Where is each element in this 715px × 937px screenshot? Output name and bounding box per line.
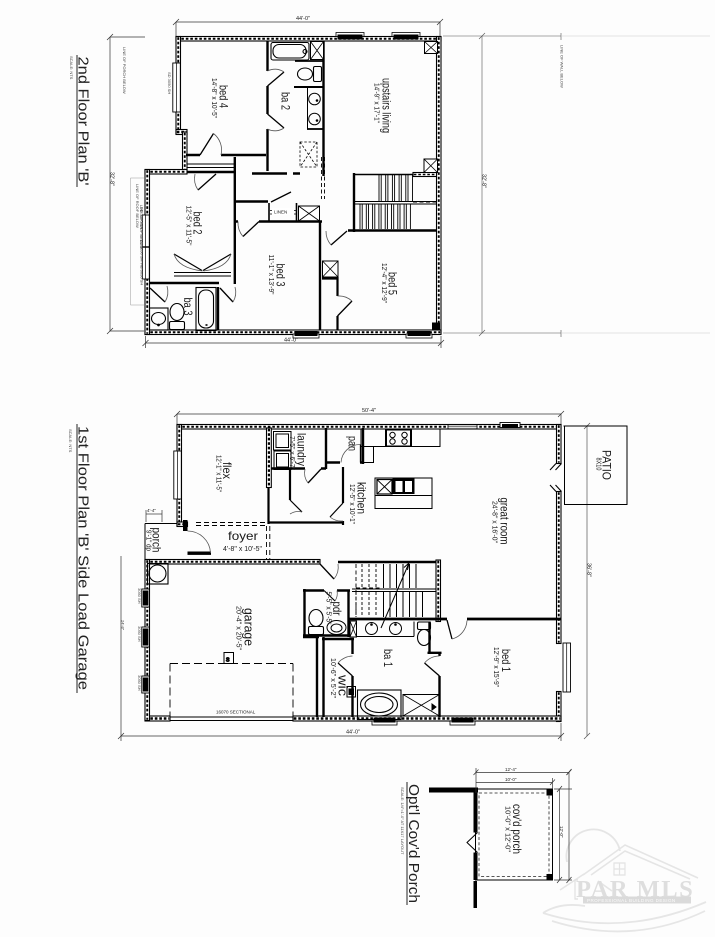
svg-text:44'-0": 44'-0" bbox=[296, 16, 310, 22]
svg-text:50'-4": 50'-4" bbox=[362, 408, 376, 414]
svg-text:LINE OF PORCH BELOW: LINE OF PORCH BELOW bbox=[122, 47, 127, 94]
svg-text:3050 SH: 3050 SH bbox=[137, 675, 142, 691]
svg-text:5'-5" x 5'-5": 5'-5" x 5'-5" bbox=[325, 592, 332, 625]
svg-text:bed 1: bed 1 bbox=[499, 649, 513, 672]
svg-text:ba 3: ba 3 bbox=[181, 298, 195, 316]
svg-text:3050 SH: 3050 SH bbox=[137, 588, 142, 604]
svg-text:10'-6" x 5'-2": 10'-6" x 5'-2" bbox=[329, 658, 336, 699]
svg-text:4'-4": 4'-4" bbox=[147, 508, 156, 513]
svg-text:upstairs living: upstairs living bbox=[380, 78, 394, 133]
svg-text:pan: pan bbox=[346, 436, 360, 451]
svg-text:ba 2: ba 2 bbox=[279, 92, 293, 110]
svg-text:12'-4" x 12'-9": 12'-4" x 12'-9" bbox=[380, 263, 387, 303]
svg-text:24'-8": 24'-8" bbox=[121, 620, 126, 631]
svg-text:8X10: 8X10 bbox=[595, 458, 602, 471]
svg-text:SCALE: NTS: SCALE: NTS bbox=[68, 429, 73, 453]
svg-text:14'-9" x 17'-1": 14'-9" x 17'-1" bbox=[373, 83, 380, 123]
svg-text:7'-5" x 6'-7": 7'-5" x 6'-7" bbox=[288, 436, 295, 470]
svg-text:4'-8" x 10'-5": 4'-8" x 10'-5" bbox=[223, 546, 263, 553]
svg-text:great room: great room bbox=[498, 498, 512, 545]
svg-text:bed 2: bed 2 bbox=[191, 212, 205, 235]
svg-text:32'-8": 32'-8" bbox=[109, 172, 115, 186]
svg-text:20'-4" x 20'-5": 20'-4" x 20'-5" bbox=[235, 606, 242, 651]
svg-text:BL 3050 SH: BL 3050 SH bbox=[140, 240, 145, 262]
svg-text:wic: wic bbox=[336, 674, 351, 697]
svg-text:10'-0" x 12'-0": 10'-0" x 12'-0" bbox=[504, 806, 511, 853]
svg-text:12'-4": 12'-4" bbox=[505, 767, 517, 772]
svg-text:HB 3050 SH: HB 3050 SH bbox=[140, 263, 145, 285]
svg-text:PROFESSIONAL BUILDING DESIGN: PROFESSIONAL BUILDING DESIGN bbox=[587, 898, 676, 903]
svg-text:SCALE: 1/4"=1'-0" AT 11X17 LAY: SCALE: 1/4"=1'-0" AT 11X17 LAYOUT bbox=[400, 787, 405, 855]
svg-text:9'-1" dp: 9'-1" dp bbox=[145, 530, 152, 551]
svg-text:kitchen: kitchen bbox=[355, 482, 369, 514]
svg-text:36'-8": 36'-8" bbox=[586, 563, 592, 577]
svg-text:12'-1" x 11'-5": 12'-1" x 11'-5" bbox=[215, 455, 222, 492]
svg-text:SD 3050 SH: SD 3050 SH bbox=[167, 72, 172, 94]
svg-text:s: s bbox=[226, 657, 230, 664]
svg-text:32'-8": 32'-8" bbox=[481, 174, 487, 188]
svg-text:SCALE: NTS: SCALE: NTS bbox=[69, 56, 74, 80]
svg-text:Opt'l Cov'd Porch: Opt'l Cov'd Porch bbox=[405, 784, 422, 903]
svg-text:12'-0": 12'-0" bbox=[559, 826, 564, 838]
svg-text:foyer: foyer bbox=[228, 529, 258, 543]
svg-text:12'-9" x 15'-9": 12'-9" x 15'-9" bbox=[492, 647, 499, 687]
svg-text:14'-8" x 10'-5": 14'-8" x 10'-5" bbox=[210, 78, 217, 118]
svg-text:12'-5" x 11'-5": 12'-5" x 11'-5" bbox=[185, 206, 192, 246]
svg-text:ba 1: ba 1 bbox=[381, 649, 395, 667]
svg-text:16070 SECTIONAL: 16070 SECTIONAL bbox=[216, 710, 256, 715]
svg-text:LINEN: LINEN bbox=[274, 210, 287, 215]
svg-text:44'-0": 44'-0" bbox=[346, 730, 360, 736]
svg-text:bed 3: bed 3 bbox=[274, 264, 288, 287]
svg-text:garage: garage bbox=[242, 608, 257, 646]
svg-text:bed 4: bed 4 bbox=[217, 85, 231, 108]
svg-text:10'-0": 10'-0" bbox=[505, 777, 517, 782]
svg-text:LINE OF ROOF BELOW: LINE OF ROOF BELOW bbox=[135, 184, 140, 228]
svg-text:3050 SH: 3050 SH bbox=[137, 626, 142, 642]
svg-text:LINE OF WALL BELOW: LINE OF WALL BELOW bbox=[560, 45, 565, 88]
svg-text:24'-8" x 16'-0": 24'-8" x 16'-0" bbox=[491, 501, 498, 543]
svg-text:cov'd porch: cov'd porch bbox=[510, 804, 524, 854]
svg-text:11'-1" x 13'-9": 11'-1" x 13'-9" bbox=[267, 255, 274, 295]
svg-text:laundry: laundry bbox=[295, 433, 309, 466]
svg-text:12'-5" x 10'-1": 12'-5" x 10'-1" bbox=[348, 484, 355, 524]
